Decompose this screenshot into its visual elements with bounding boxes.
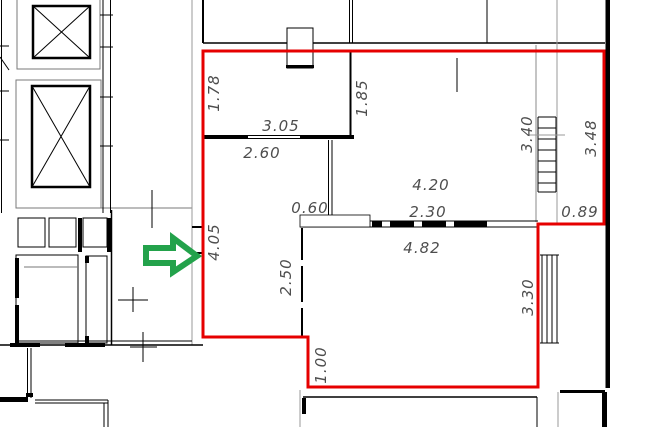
dimension-label: 2.60 xyxy=(243,144,280,162)
floor-plan-canvas: 1.783.052.601.853.403.484.202.300.600.89… xyxy=(0,0,662,427)
dimension-label: 2.50 xyxy=(277,258,295,295)
corridor-walls xyxy=(0,0,192,345)
dimension-label: 3.40 xyxy=(518,115,536,152)
dimension-label: 3.30 xyxy=(519,278,537,315)
dimension-label: 2.30 xyxy=(409,203,446,221)
dimension-label: 4.20 xyxy=(412,176,449,194)
dimension-label: 1.78 xyxy=(205,74,223,111)
dimension-label: 3.05 xyxy=(262,117,299,135)
dimension-label: 1.85 xyxy=(353,79,371,116)
lower-walls xyxy=(0,343,605,427)
dimension-label: 0.60 xyxy=(291,199,328,217)
upper-neighbour-walls xyxy=(203,0,605,45)
service-rooms xyxy=(15,218,111,343)
dimension-label: 0.89 xyxy=(561,203,598,221)
dimension-label: 1.00 xyxy=(312,346,330,383)
apartment-highlight-outline xyxy=(203,51,604,387)
pointer-arrow-icon xyxy=(146,238,197,272)
dimension-label: 3.48 xyxy=(582,119,600,156)
apartment-interior-walls xyxy=(203,45,557,337)
centreline-marks xyxy=(118,190,157,362)
elevator-shaft-icon xyxy=(32,6,90,187)
duct-column xyxy=(287,28,313,68)
window-bedroom xyxy=(540,255,559,343)
dimension-label: 4.82 xyxy=(403,239,440,257)
dimension-label: 4.05 xyxy=(205,223,223,260)
